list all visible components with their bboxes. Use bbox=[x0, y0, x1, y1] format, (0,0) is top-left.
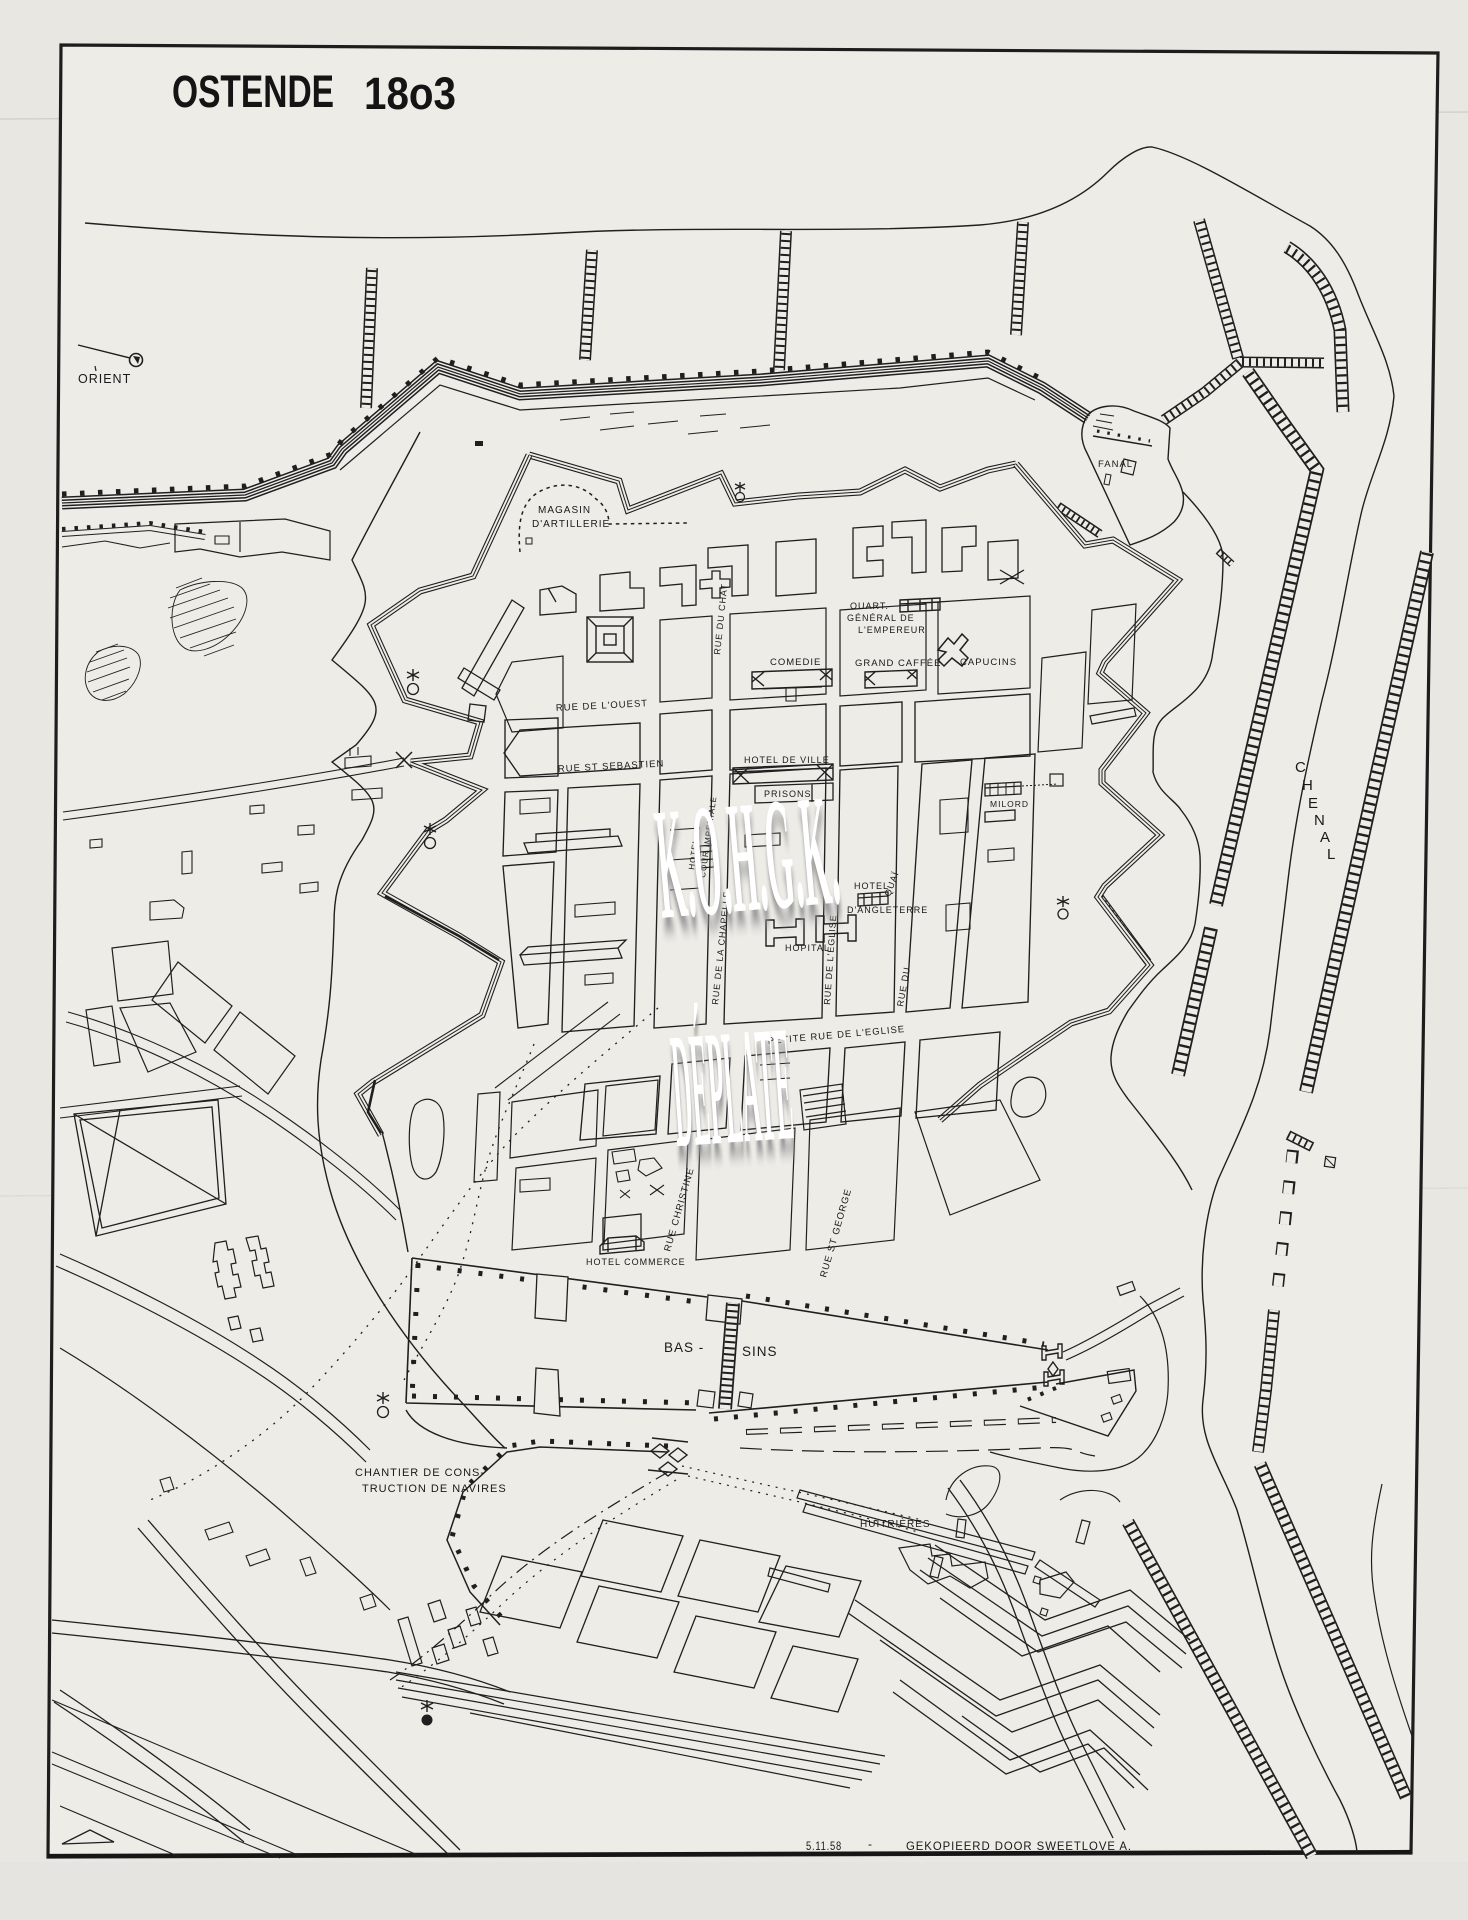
svg-text:COMEDIE: COMEDIE bbox=[770, 657, 821, 668]
svg-text:MAGASIN: MAGASIN bbox=[538, 505, 591, 516]
svg-text:L: L bbox=[1327, 846, 1336, 863]
svg-text:TRUCTION DE NAVIRES: TRUCTION DE NAVIRES bbox=[362, 1483, 507, 1495]
svg-text:OSTENDE: OSTENDE bbox=[172, 66, 334, 117]
svg-text:FANAL: FANAL bbox=[1098, 459, 1133, 470]
svg-text:BAS -: BAS - bbox=[664, 1340, 704, 1355]
svg-text:GRAND CAFFÉE: GRAND CAFFÉE bbox=[855, 658, 941, 669]
svg-text:CHANTIER DE CONS-: CHANTIER DE CONS- bbox=[355, 1467, 485, 1479]
svg-text:C: C bbox=[1295, 759, 1307, 776]
svg-text:K.O.H.G.K.: K.O.H.G.K. bbox=[650, 762, 846, 954]
svg-text:H: H bbox=[1302, 777, 1314, 794]
svg-text:GÉNÉRAL DE: GÉNÉRAL DE bbox=[847, 613, 915, 623]
svg-text:SINS: SINS bbox=[742, 1344, 778, 1359]
svg-text:MILORD: MILORD bbox=[990, 799, 1029, 809]
svg-text:5.11.58: 5.11.58 bbox=[806, 1839, 842, 1853]
svg-text:CAPUCINS: CAPUCINS bbox=[960, 657, 1017, 668]
svg-text:-: - bbox=[868, 1837, 873, 1851]
svg-text:N: N bbox=[1314, 812, 1326, 829]
svg-text:ORIENT: ORIENT bbox=[78, 372, 131, 386]
svg-text:E: E bbox=[1308, 795, 1319, 812]
svg-text:GEKOPIEERD DOOR SWEETLOVE A: GEKOPIEERD DOOR SWEETLOVE A. bbox=[906, 1839, 1132, 1853]
svg-text:D'ARTILLERIE: D'ARTILLERIE bbox=[532, 519, 610, 530]
svg-text:HOTEL COMMERCE: HOTEL COMMERCE bbox=[586, 1257, 686, 1267]
svg-text:A: A bbox=[1320, 829, 1331, 846]
svg-text:L'EMPEREUR: L'EMPEREUR bbox=[858, 625, 926, 635]
svg-text:DÉPLATE: DÉPLATE bbox=[666, 991, 797, 1182]
svg-text:OUART.: OUART. bbox=[850, 601, 889, 611]
svg-text:18o3: 18o3 bbox=[364, 68, 456, 119]
